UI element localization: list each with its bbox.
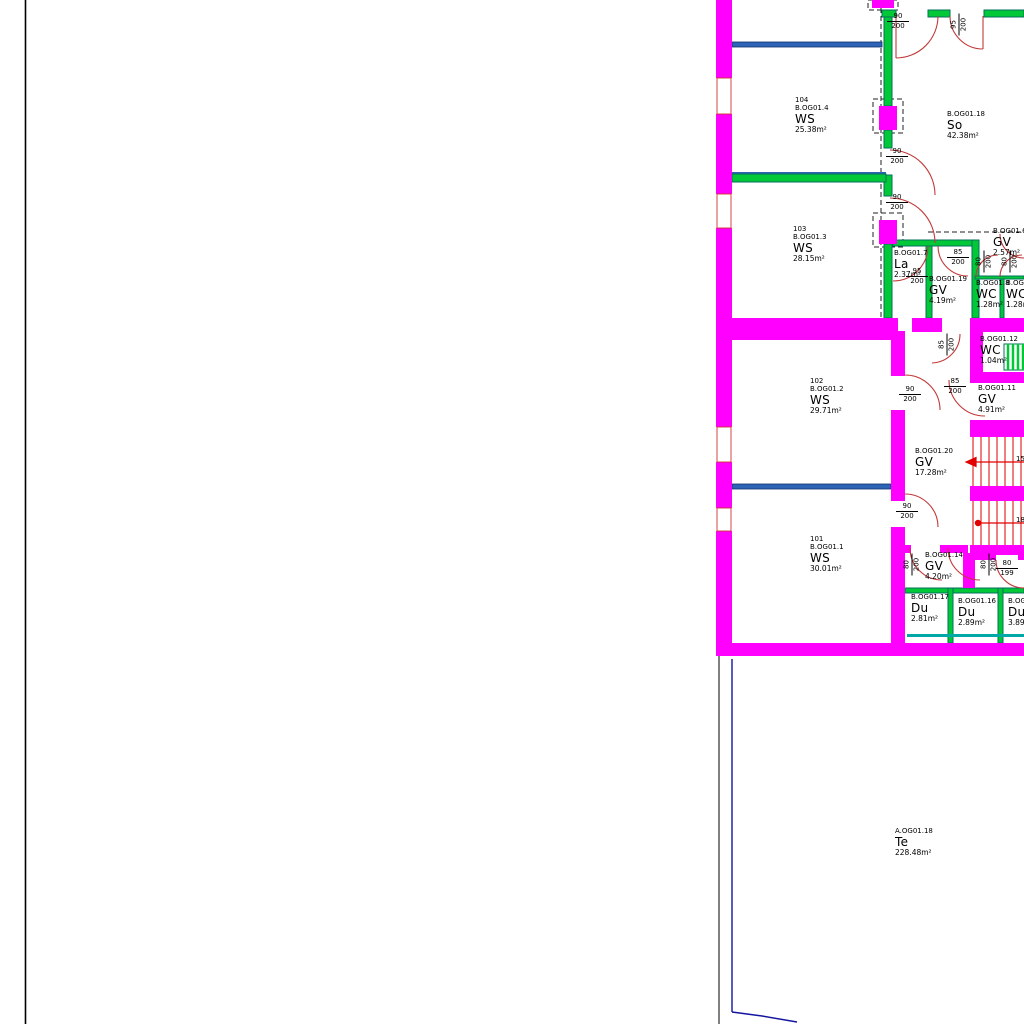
room-label-wc8: B.OG01.8 WC 1.28m² xyxy=(976,280,1010,310)
room-label-103-ws: 103 B.OG01.3 WS 28.15m² xyxy=(793,226,827,263)
room-name: Du xyxy=(911,602,949,615)
room-area: 1.28m² xyxy=(1006,301,1024,309)
room-label-gv20: B.OG01.20 GV 17.28m² xyxy=(915,448,953,478)
room-area: 228.48m² xyxy=(895,849,933,857)
room-name: WS xyxy=(810,394,844,407)
room-label-104-ws: 104 B.OG01.4 WS 25.38m² xyxy=(795,97,829,134)
room-label-101-ws: 101 B.OG01.1 WS 30.01m² xyxy=(810,536,844,573)
room-label-gv19: B.OG01.19 GV 4.19m² xyxy=(929,276,967,306)
room-area: 29.71m² xyxy=(810,407,844,415)
duct-teal-lines xyxy=(907,634,1024,637)
room-name: WC xyxy=(976,288,1010,301)
door-size-label: 80200 xyxy=(904,554,921,576)
room-label-wc9: B.OG01.9 WC 1.28m² xyxy=(1006,280,1024,310)
room-label-gv14: B.OG01.14 GV 4.20m² xyxy=(925,552,963,582)
room-name: GV xyxy=(993,236,1024,249)
door-size-label: 85200 xyxy=(947,249,969,266)
room-label-terrace: A.OG01.18 Te 228.48m² xyxy=(895,828,933,858)
exterior-and-load-bearing-walls xyxy=(716,0,1024,656)
room-label-du15: B.OG01.15 Du 3.89m² xyxy=(1008,598,1024,628)
room-area: 3.89m² xyxy=(1008,619,1024,627)
room-name: So xyxy=(947,119,985,132)
door-size-label: 85200 xyxy=(944,378,966,395)
door-size-label: 90200 xyxy=(896,503,918,520)
room-area: 4.20m² xyxy=(925,573,963,581)
room-name: Du xyxy=(1008,606,1024,619)
room-name: Te xyxy=(895,836,933,849)
room-label-wc12: B.OG01.12 WC 1.04m² xyxy=(980,336,1018,366)
door-size-label: 90200 xyxy=(886,194,908,211)
room-area: 17.28m² xyxy=(915,469,953,477)
door-size-label: 80199 xyxy=(996,560,1018,577)
door-size-label: 90200 xyxy=(886,148,908,165)
room-label-gv11: B.OG01.11 GV 4.91m² xyxy=(978,385,1016,415)
door-size-label: 85200 xyxy=(939,334,956,356)
room-area: 1.28m² xyxy=(976,301,1010,309)
room-area: 42.38m² xyxy=(947,132,985,140)
boundary-lines xyxy=(26,0,720,1024)
room-name: GV xyxy=(925,560,963,573)
terrace-boundary xyxy=(732,659,797,1022)
room-name: GV xyxy=(929,284,967,297)
room-area: 2.81m² xyxy=(911,615,949,623)
room-label-so: B.OG01.18 So 42.38m² xyxy=(947,111,985,141)
room-name: WS xyxy=(793,242,827,255)
door-size-label: 90200 xyxy=(899,386,921,403)
room-name: Du xyxy=(958,606,996,619)
room-area: 28.15m² xyxy=(793,255,827,263)
room-name: WC xyxy=(1006,288,1024,301)
floor-plan-drawing xyxy=(0,0,1024,1024)
room-area: 25.38m² xyxy=(795,126,829,134)
room-area: 4.91m² xyxy=(978,406,1016,414)
room-label-du16: B.OG01.16 Du 2.89m² xyxy=(958,598,996,628)
stair-step-number: 15 xyxy=(1016,455,1024,463)
door-size-label: 80200 xyxy=(981,554,998,576)
room-name: GV xyxy=(915,456,953,469)
room-label-102-ws: 102 B.OG01.2 WS 29.71m² xyxy=(810,378,844,415)
room-name: GV xyxy=(978,393,1016,406)
door-size-label: 95200 xyxy=(906,268,928,285)
room-label-du17: B.OG01.17 Du 2.81m² xyxy=(911,594,949,624)
room-area: 30.01m² xyxy=(810,565,844,573)
door-size-label: 80200 xyxy=(976,251,993,273)
room-name: WS xyxy=(810,552,844,565)
room-area: 2.89m² xyxy=(958,619,996,627)
room-area: 4.19m² xyxy=(929,297,967,305)
door-size-label: 80200 xyxy=(1002,251,1019,273)
room-area: 1.04m² xyxy=(980,357,1018,365)
floor-plan-canvas: 104 B.OG01.4 WS 25.38m² B.OG01.18 So 42.… xyxy=(0,0,1024,1024)
room-name: WS xyxy=(795,113,829,126)
door-size-label: 90200 xyxy=(887,13,909,30)
door-size-label: 95200 xyxy=(951,14,968,36)
room-name: WC xyxy=(980,344,1018,357)
stair-step-number: 18 xyxy=(1016,516,1024,524)
